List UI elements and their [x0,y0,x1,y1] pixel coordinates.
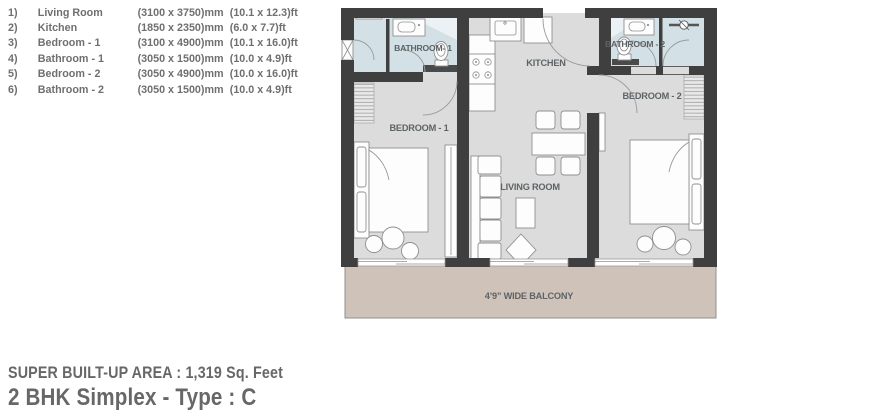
legend-row: 3) Bedroom - 1 (3100 x 4900)mm (10.1 x 1… [8,36,325,51]
legend-row: 1) Living Room (3100 x 3750)mm (10.1 x 1… [8,5,325,20]
legend-dim-mm: (1850 x 2350)mm [138,22,230,34]
bathroom2-label: BATHROOM - 2 [605,39,665,49]
legend-room-name: Living Room [38,7,138,19]
bedroom1-label: BEDROOM - 1 [389,123,448,133]
legend-dim-ft: (10.0 x 4.9)ft [230,53,325,65]
legend-room-name: Bathroom - 2 [38,84,138,96]
legend-dim-mm: (3100 x 3750)mm [138,7,230,19]
legend-room-name: Bedroom - 1 [38,37,138,49]
balcony-window-icons [358,259,693,266]
legend-room-name: Bathroom - 1 [38,53,138,65]
legend-index: 1) [8,7,38,19]
bed-bedroom2-icon [630,134,704,230]
bed-bedroom1-icon [354,142,428,238]
legend-row: 2) Kitchen (1850 x 2350)mm (6.0 x 7.7)ft [8,20,325,35]
kitchen-label: KITCHEN [526,58,566,68]
legend-dim-mm: (3050 x 1500)mm [138,84,230,96]
legend-dim-mm: (3050 x 1500)mm [138,53,230,65]
door-leaf-bedroom2-icon [599,113,605,151]
legend-dim-ft: (10.0 x 4.9)ft [230,84,325,96]
bathroom1-label: BATHROOM- 1 [394,43,452,53]
room-schedule-legend: 1) Living Room (3100 x 3750)mm (10.1 x 1… [8,5,325,97]
sofa-icon [471,156,501,259]
legend-index: 4) [8,53,38,65]
wardrobe-bedroom2-icon [684,75,704,119]
legend-dim-ft: (6.0 x 7.7)ft [230,22,325,34]
legend-index: 3) [8,37,38,49]
legend-room-name: Kitchen [38,22,138,34]
legend-dim-ft: (10.1 x 12.3)ft [230,7,325,19]
living-room-label: LIVING ROOM [500,182,560,192]
legend-index: 2) [8,22,38,34]
legend-row: 5) Bedroom - 2 (3050 x 4900)mm (10.0 x 1… [8,67,325,82]
bedroom2-label: BEDROOM - 2 [622,91,681,101]
legend-row: 4) Bathroom - 1 (3050 x 1500)mm (10.0 x … [8,51,325,66]
legend-dim-mm: (3100 x 4900)mm [138,37,230,49]
sink-bathroom1-icon [393,19,425,36]
floorplan-page: 1) Living Room (3100 x 3750)mm (10.1 x 1… [0,0,870,420]
wardrobe-bedroom1-icon [354,83,374,123]
balcony-label: 4’9” WIDE BALCONY [485,291,574,301]
main-door-icon [342,40,353,60]
super-built-up-area-text: SUPER BUILT-UP AREA : 1,319 Sq. Feet [8,363,283,383]
coffee-table-icon [516,198,535,228]
legend-room-name: Bedroom - 2 [38,68,138,80]
foyer-floor [354,19,387,74]
floor-plan-drawing: BATHROOM- 1 KITCHEN BATHROOM - 2 BEDROOM… [341,8,717,320]
sink-bathroom2-icon [624,19,654,35]
balcony-floor [345,260,716,318]
legend-dim-ft: (10.0 x 16.0)ft [230,68,325,80]
legend-dim-mm: (3050 x 4900)mm [138,68,230,80]
plan-title: 2 BHK Simplex - Type : C [8,384,283,412]
legend-index: 5) [8,68,38,80]
plan-footer: SUPER BUILT-UP AREA : 1,319 Sq. Feet 2 B… [8,363,335,412]
legend-row: 6) Bathroom - 2 (3050 x 1500)mm (10.0 x … [8,82,325,97]
legend-dim-ft: (10.1 x 16.0)ft [230,37,325,49]
legend-index: 6) [8,84,38,96]
stove-icon [469,54,495,84]
